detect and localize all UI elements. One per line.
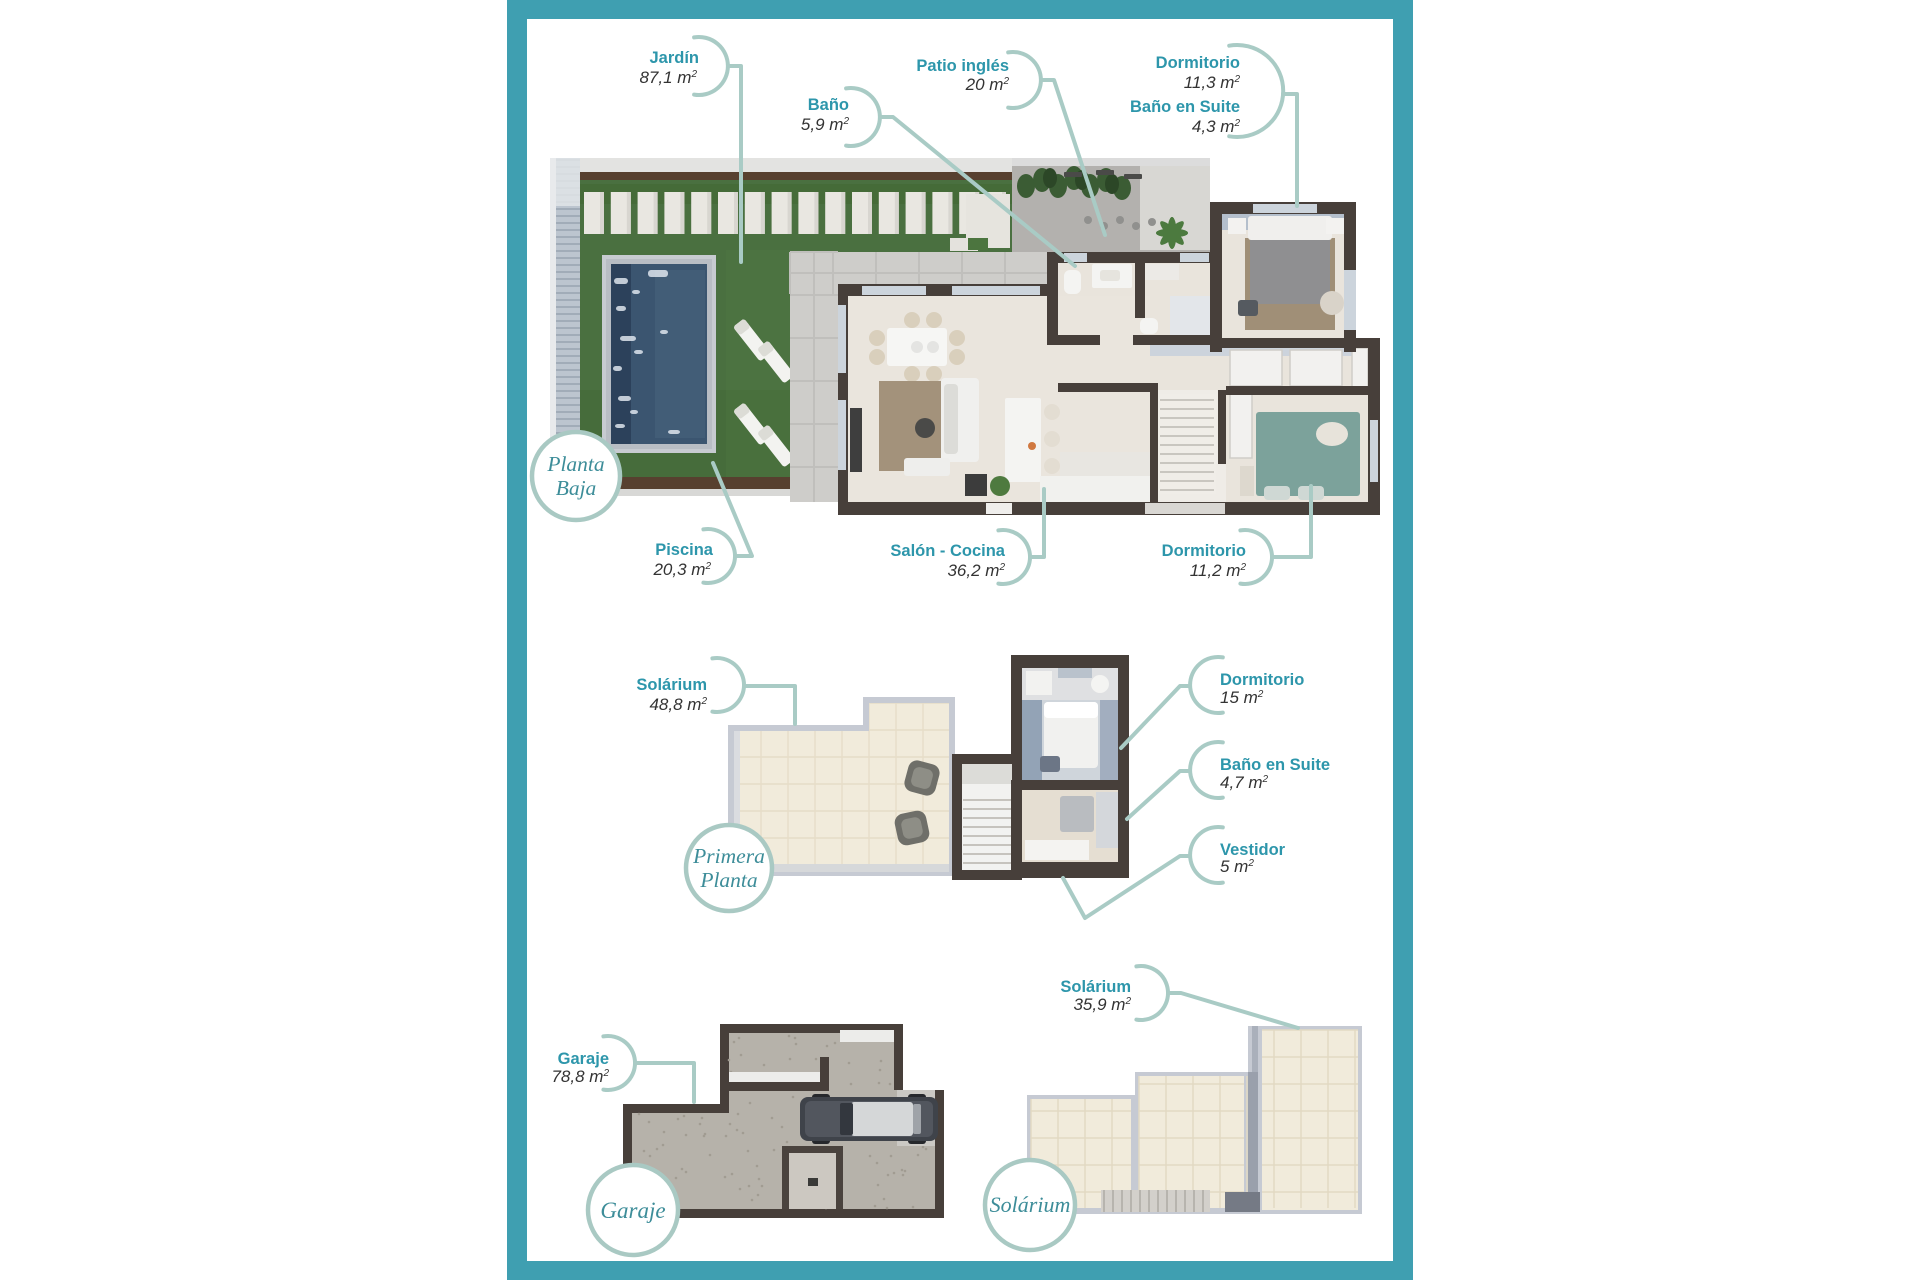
svg-text:11,3 m2: 11,3 m2 bbox=[1184, 73, 1241, 92]
svg-text:20 m2: 20 m2 bbox=[965, 75, 1010, 94]
svg-text:Piscina: Piscina bbox=[655, 541, 714, 559]
svg-text:Baja: Baja bbox=[556, 476, 597, 500]
svg-text:Patio inglés: Patio inglés bbox=[916, 57, 1009, 75]
svg-text:Dormitorio: Dormitorio bbox=[1162, 542, 1246, 560]
svg-text:15 m2: 15 m2 bbox=[1220, 688, 1264, 707]
svg-text:Solárium: Solárium bbox=[1060, 978, 1131, 996]
svg-text:Baño en Suite: Baño en Suite bbox=[1220, 756, 1330, 774]
svg-text:36,2 m2: 36,2 m2 bbox=[947, 561, 1005, 580]
svg-text:87,1 m2: 87,1 m2 bbox=[639, 68, 697, 87]
svg-text:Planta: Planta bbox=[699, 868, 757, 892]
svg-text:5,9 m2: 5,9 m2 bbox=[801, 115, 850, 134]
svg-text:Salón - Cocina: Salón - Cocina bbox=[890, 542, 1005, 560]
svg-text:4,7 m2: 4,7 m2 bbox=[1220, 773, 1269, 792]
svg-text:11,2 m2: 11,2 m2 bbox=[1190, 561, 1247, 580]
svg-text:Dormitorio: Dormitorio bbox=[1220, 671, 1304, 689]
svg-text:20,3 m2: 20,3 m2 bbox=[652, 560, 711, 579]
svg-text:Primera: Primera bbox=[692, 844, 765, 868]
svg-text:Garaje: Garaje bbox=[558, 1050, 609, 1068]
svg-text:Dormitorio: Dormitorio bbox=[1156, 54, 1240, 72]
svg-text:Solárium: Solárium bbox=[990, 1192, 1071, 1217]
svg-text:Planta: Planta bbox=[546, 452, 604, 476]
svg-text:35,9 m2: 35,9 m2 bbox=[1073, 995, 1131, 1014]
svg-text:Jardín: Jardín bbox=[649, 49, 699, 67]
svg-text:Garaje: Garaje bbox=[600, 1198, 665, 1223]
svg-text:78,8 m2: 78,8 m2 bbox=[551, 1067, 609, 1086]
svg-text:48,8 m2: 48,8 m2 bbox=[649, 695, 707, 714]
svg-text:4,3 m2: 4,3 m2 bbox=[1192, 117, 1241, 136]
svg-text:Baño en Suite: Baño en Suite bbox=[1130, 98, 1240, 116]
svg-text:Baño: Baño bbox=[808, 96, 849, 114]
svg-text:Solárium: Solárium bbox=[636, 676, 707, 694]
